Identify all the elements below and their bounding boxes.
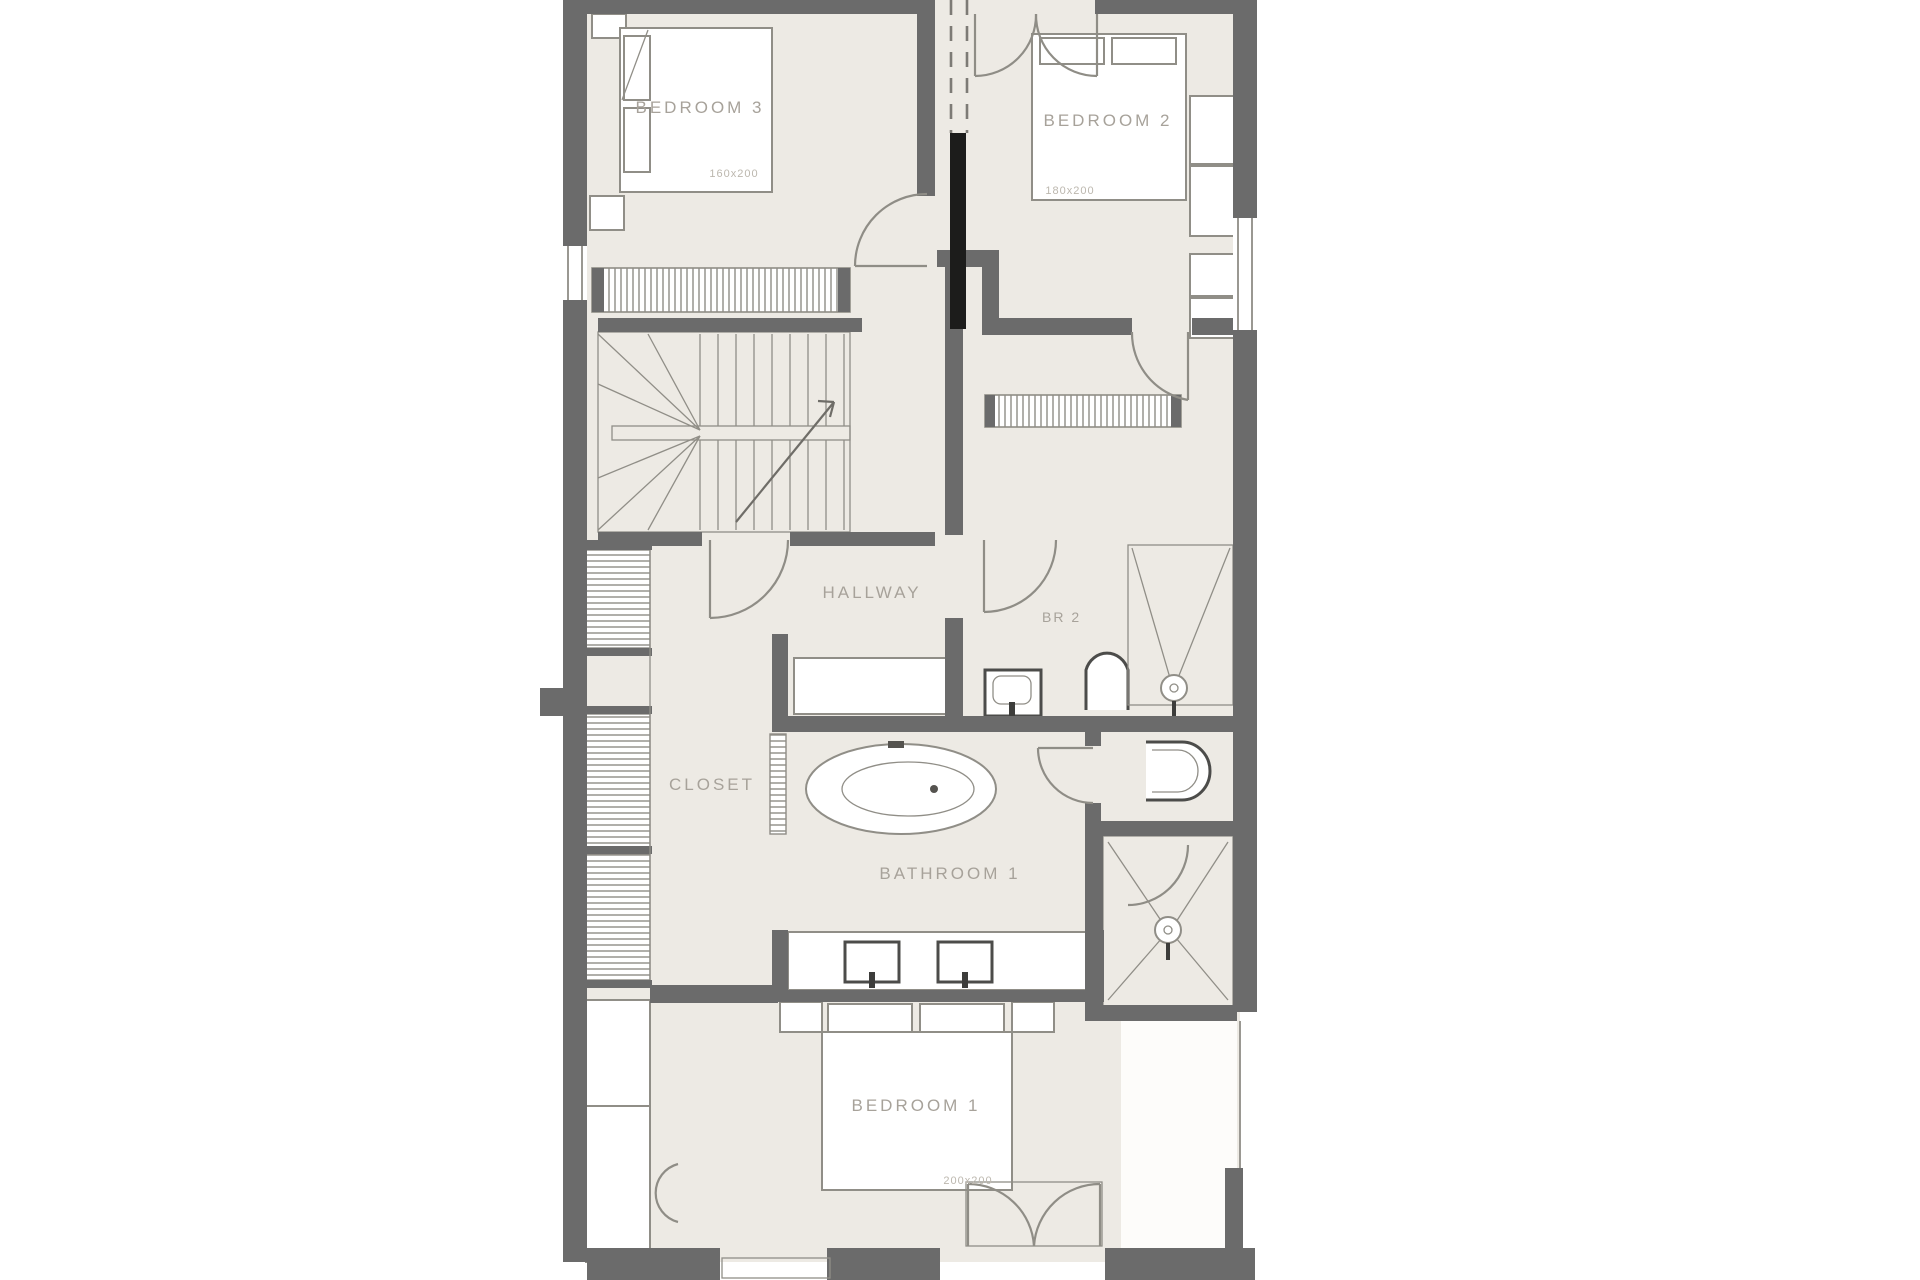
radiator-under-bedroom3 (592, 268, 850, 312)
dim-bedroom1: 200x200 (943, 1175, 992, 1187)
faucet (869, 972, 875, 988)
wc-toilet (1146, 742, 1210, 800)
towel-radiator-bathroom1 (770, 734, 786, 834)
hallway-cabinet (794, 658, 946, 714)
dim-bedroom2: 180x200 (1045, 185, 1094, 197)
pillow (624, 108, 650, 172)
dim-bedroom3: 160x200 (709, 168, 758, 180)
closet-wardrobes (586, 540, 652, 988)
pillow (1040, 38, 1104, 64)
pillow (920, 1004, 1004, 1032)
exterior-notch (1121, 1021, 1237, 1249)
pillow (1112, 38, 1176, 64)
label-bedroom2: BEDROOM 2 (1043, 111, 1172, 130)
shower-drain (1161, 675, 1187, 701)
radiator-br2 (985, 395, 1181, 427)
faucet (962, 972, 968, 988)
double-vanity (788, 932, 1090, 990)
bedroom1-wardrobes (586, 1000, 650, 1262)
faucet (1009, 702, 1015, 718)
nightstand (590, 196, 624, 230)
floor-plan: BEDROOM 3 160x200 BEDROOM 2 180x200 HALL… (0, 0, 1920, 1280)
label-bathroom1: BATHROOM 1 (879, 864, 1020, 883)
label-closet: CLOSET (669, 775, 755, 794)
shower-drain (1155, 917, 1181, 943)
bedroom2-wardrobe (1190, 96, 1234, 338)
br2-toilet (1086, 653, 1128, 710)
window-right (1233, 218, 1257, 330)
label-bedroom1: BEDROOM 1 (851, 1096, 980, 1115)
pillow (828, 1004, 912, 1032)
label-hallway: HALLWAY (822, 583, 921, 602)
nightstand (780, 1002, 822, 1032)
nightstand (1012, 1002, 1054, 1032)
label-bedroom3: BEDROOM 3 (635, 98, 764, 117)
sliding-door-panel (950, 133, 966, 329)
window-left (563, 246, 587, 300)
pillow (624, 36, 650, 100)
label-br2: BR 2 (1042, 609, 1081, 625)
floor-plan-drawing: BEDROOM 3 160x200 BEDROOM 2 180x200 HALL… (0, 0, 1920, 1280)
br2-washbasin (985, 670, 1041, 718)
